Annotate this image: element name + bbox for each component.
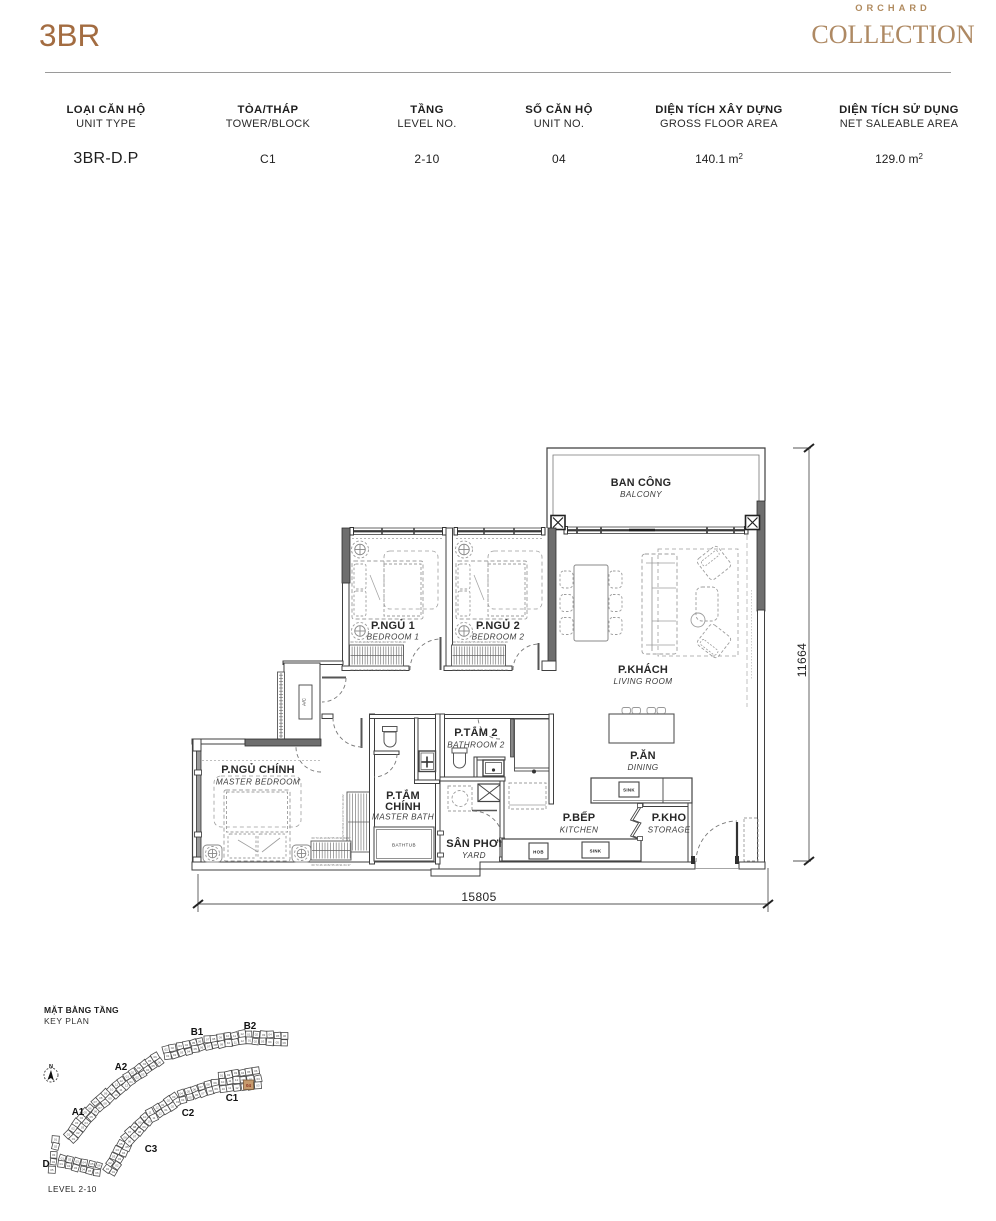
svg-text:01: 01 bbox=[67, 1133, 71, 1137]
svg-text:03: 03 bbox=[81, 1125, 85, 1129]
svg-text:TOWER/BLOCK: TOWER/BLOCK bbox=[226, 118, 311, 130]
svg-text:05: 05 bbox=[148, 1059, 152, 1063]
svg-text:3BR: 3BR bbox=[39, 17, 100, 53]
svg-text:03: 03 bbox=[234, 1071, 238, 1075]
svg-text:01: 01 bbox=[72, 1137, 76, 1141]
svg-text:STORAGE: STORAGE bbox=[648, 826, 691, 835]
svg-text:06: 06 bbox=[154, 1055, 158, 1059]
svg-text:02: 02 bbox=[115, 1164, 119, 1168]
svg-text:03: 03 bbox=[141, 1072, 145, 1076]
svg-text:BALCONY: BALCONY bbox=[620, 490, 662, 499]
svg-text:09: 09 bbox=[104, 1091, 108, 1095]
svg-text:05: 05 bbox=[119, 1142, 123, 1146]
svg-text:10: 10 bbox=[114, 1093, 118, 1097]
svg-text:03: 03 bbox=[257, 1077, 261, 1081]
svg-text:15805: 15805 bbox=[461, 890, 496, 904]
svg-text:BATHTUB: BATHTUB bbox=[392, 843, 416, 848]
svg-text:11: 11 bbox=[228, 1086, 231, 1090]
svg-text:P.KHO: P.KHO bbox=[652, 812, 687, 824]
svg-text:09: 09 bbox=[138, 1120, 142, 1124]
svg-text:07: 07 bbox=[98, 1106, 102, 1110]
svg-text:02: 02 bbox=[255, 1033, 259, 1037]
svg-text:05: 05 bbox=[90, 1115, 94, 1119]
svg-text:LOẠI CĂN HỘ: LOẠI CĂN HỘ bbox=[66, 103, 145, 116]
svg-text:12: 12 bbox=[235, 1078, 239, 1082]
svg-text:07: 07 bbox=[206, 1038, 210, 1042]
svg-text:12: 12 bbox=[240, 1032, 244, 1036]
svg-text:06: 06 bbox=[283, 1041, 287, 1045]
svg-text:10: 10 bbox=[221, 1080, 225, 1084]
svg-text:07: 07 bbox=[94, 1100, 98, 1104]
svg-text:KITCHEN: KITCHEN bbox=[560, 826, 599, 835]
svg-text:140.1 m2: 140.1 m2 bbox=[695, 152, 743, 166]
svg-text:A/C: A/C bbox=[302, 697, 308, 706]
svg-text:01: 01 bbox=[165, 1048, 169, 1052]
svg-text:D: D bbox=[42, 1159, 49, 1170]
svg-text:B2: B2 bbox=[244, 1021, 257, 1032]
svg-text:06: 06 bbox=[95, 1171, 99, 1175]
svg-text:04: 04 bbox=[268, 1040, 272, 1044]
svg-text:02: 02 bbox=[71, 1127, 75, 1131]
svg-text:03: 03 bbox=[176, 1100, 180, 1104]
svg-text:SINK: SINK bbox=[590, 849, 602, 854]
svg-text:04: 04 bbox=[269, 1033, 273, 1037]
svg-text:10: 10 bbox=[110, 1088, 114, 1092]
svg-text:C3: C3 bbox=[145, 1144, 158, 1155]
svg-text:06: 06 bbox=[193, 1087, 197, 1091]
svg-text:02: 02 bbox=[54, 1145, 58, 1149]
svg-text:01: 01 bbox=[248, 1039, 252, 1043]
svg-text:YARD: YARD bbox=[462, 851, 486, 860]
svg-text:37: 37 bbox=[347, 836, 351, 840]
svg-text:P.NGỦ 2: P.NGỦ 2 bbox=[476, 619, 520, 632]
svg-text:02: 02 bbox=[67, 1164, 71, 1168]
svg-text:02: 02 bbox=[173, 1053, 177, 1057]
svg-text:09: 09 bbox=[142, 1125, 146, 1129]
svg-text:06: 06 bbox=[128, 1140, 132, 1144]
svg-text:01: 01 bbox=[220, 1074, 224, 1078]
svg-text:08: 08 bbox=[138, 1130, 142, 1134]
svg-text:DINING: DINING bbox=[627, 763, 658, 772]
svg-text:12: 12 bbox=[155, 1106, 159, 1110]
svg-text:19: 19 bbox=[504, 668, 508, 672]
svg-text:06: 06 bbox=[254, 1069, 258, 1073]
svg-text:02: 02 bbox=[136, 1076, 140, 1080]
svg-text:04: 04 bbox=[180, 1091, 184, 1095]
svg-text:11: 11 bbox=[233, 1034, 236, 1038]
svg-text:01: 01 bbox=[129, 1080, 133, 1084]
svg-text:11: 11 bbox=[148, 1110, 151, 1114]
svg-text:05: 05 bbox=[125, 1145, 129, 1149]
svg-text:P.TẮM 2: P.TẮM 2 bbox=[454, 726, 497, 739]
svg-text:07: 07 bbox=[201, 1092, 205, 1096]
svg-text:05: 05 bbox=[276, 1040, 280, 1044]
svg-text:01: 01 bbox=[112, 1170, 116, 1174]
svg-text:02: 02 bbox=[171, 1105, 175, 1109]
svg-text:04: 04 bbox=[83, 1161, 87, 1165]
svg-text:SÂN PHƠI: SÂN PHƠI bbox=[446, 837, 502, 850]
svg-text:09: 09 bbox=[213, 1081, 217, 1085]
svg-text:03: 03 bbox=[137, 1066, 141, 1070]
svg-text:2-10: 2-10 bbox=[414, 152, 439, 166]
svg-text:DIỆN TÍCH SỬ DỤNG: DIỆN TÍCH SỬ DỤNG bbox=[839, 103, 959, 116]
svg-text:07: 07 bbox=[200, 1085, 204, 1089]
svg-text:P.KHÁCH: P.KHÁCH bbox=[618, 663, 668, 676]
svg-text:08: 08 bbox=[206, 1082, 210, 1086]
svg-text:05: 05 bbox=[187, 1089, 191, 1093]
svg-text:04: 04 bbox=[185, 1043, 189, 1047]
svg-text:P.BẾP: P.BẾP bbox=[563, 811, 596, 824]
svg-text:01: 01 bbox=[61, 1156, 65, 1160]
svg-text:BAN CÔNG: BAN CÔNG bbox=[611, 476, 671, 489]
svg-text:LEVEL 2-10: LEVEL 2-10 bbox=[48, 1185, 97, 1194]
svg-text:SINK: SINK bbox=[623, 788, 635, 793]
svg-text:HOB: HOB bbox=[533, 850, 544, 855]
svg-text:05: 05 bbox=[192, 1041, 196, 1045]
svg-text:05: 05 bbox=[88, 1169, 92, 1173]
svg-text:TẦNG: TẦNG bbox=[410, 103, 444, 116]
svg-text:P.ĂN: P.ĂN bbox=[630, 749, 656, 762]
svg-text:LEVEL NO.: LEVEL NO. bbox=[397, 118, 456, 130]
svg-text:11: 11 bbox=[119, 1088, 122, 1092]
svg-text:06: 06 bbox=[88, 1106, 92, 1110]
svg-text:04: 04 bbox=[82, 1168, 86, 1172]
svg-text:07: 07 bbox=[133, 1135, 137, 1139]
svg-text:12: 12 bbox=[241, 1039, 245, 1043]
svg-text:07: 07 bbox=[128, 1130, 132, 1134]
svg-text:A1: A1 bbox=[72, 1107, 85, 1118]
svg-text:01: 01 bbox=[166, 1054, 170, 1058]
svg-text:01: 01 bbox=[60, 1162, 64, 1166]
svg-text:12: 12 bbox=[125, 1084, 129, 1088]
svg-text:03: 03 bbox=[180, 1051, 184, 1055]
svg-text:10: 10 bbox=[226, 1034, 230, 1038]
svg-text:01: 01 bbox=[164, 1108, 168, 1112]
svg-text:04: 04 bbox=[246, 1083, 252, 1088]
svg-text:09: 09 bbox=[219, 1036, 223, 1040]
svg-text:UNIT NO.: UNIT NO. bbox=[534, 118, 584, 130]
svg-text:04: 04 bbox=[85, 1121, 89, 1125]
svg-text:C2: C2 bbox=[182, 1108, 195, 1119]
svg-text:01: 01 bbox=[54, 1138, 58, 1142]
svg-text:BEDROOM 2: BEDROOM 2 bbox=[472, 633, 525, 642]
svg-text:03: 03 bbox=[256, 1084, 260, 1088]
svg-text:08: 08 bbox=[214, 1043, 218, 1047]
svg-text:06: 06 bbox=[283, 1034, 287, 1038]
svg-text:06: 06 bbox=[94, 1110, 98, 1114]
svg-text:MASTER BEDROOM: MASTER BEDROOM bbox=[216, 778, 300, 787]
svg-text:03: 03 bbox=[261, 1039, 265, 1043]
svg-text:01: 01 bbox=[247, 1032, 251, 1036]
svg-text:ORCHARD: ORCHARD bbox=[855, 3, 931, 13]
svg-text:10: 10 bbox=[222, 1087, 226, 1091]
svg-text:04: 04 bbox=[146, 1068, 150, 1072]
svg-text:04: 04 bbox=[52, 1160, 56, 1164]
svg-text:01: 01 bbox=[161, 1103, 165, 1107]
svg-text:11: 11 bbox=[115, 1083, 118, 1087]
svg-text:02: 02 bbox=[108, 1161, 112, 1165]
svg-text:05: 05 bbox=[194, 1047, 198, 1051]
svg-text:02: 02 bbox=[171, 1046, 175, 1050]
svg-text:B1: B1 bbox=[191, 1027, 204, 1038]
svg-text:COLLECTION: COLLECTION bbox=[811, 20, 974, 49]
svg-text:04: 04 bbox=[552, 152, 566, 166]
svg-text:03: 03 bbox=[178, 1044, 182, 1048]
svg-text:04: 04 bbox=[181, 1098, 185, 1102]
svg-text:06: 06 bbox=[198, 1040, 202, 1044]
svg-text:GROSS FLOOR AREA: GROSS FLOOR AREA bbox=[660, 118, 778, 130]
svg-text:05: 05 bbox=[90, 1162, 94, 1166]
svg-text:06: 06 bbox=[158, 1060, 162, 1064]
svg-text:LIVING ROOM: LIVING ROOM bbox=[614, 677, 673, 686]
svg-text:08: 08 bbox=[99, 1096, 103, 1100]
svg-text:19: 19 bbox=[402, 668, 406, 672]
svg-text:03: 03 bbox=[74, 1166, 78, 1170]
svg-text:02: 02 bbox=[68, 1158, 72, 1162]
svg-text:12: 12 bbox=[158, 1112, 162, 1116]
svg-text:A2: A2 bbox=[115, 1062, 128, 1073]
svg-text:37: 37 bbox=[347, 863, 351, 867]
svg-text:DIỆN TÍCH XÂY DỰNG: DIỆN TÍCH XÂY DỰNG bbox=[655, 103, 782, 116]
svg-text:01: 01 bbox=[106, 1167, 110, 1171]
svg-text:05: 05 bbox=[152, 1064, 156, 1068]
svg-text:12: 12 bbox=[235, 1086, 239, 1090]
svg-text:06: 06 bbox=[97, 1164, 101, 1168]
svg-text:08: 08 bbox=[133, 1125, 137, 1129]
svg-text:SỐ CĂN HỘ: SỐ CĂN HỘ bbox=[525, 102, 593, 116]
svg-text:04: 04 bbox=[241, 1071, 245, 1075]
svg-text:02: 02 bbox=[167, 1099, 171, 1103]
svg-text:UNIT TYPE: UNIT TYPE bbox=[76, 118, 136, 130]
svg-text:03: 03 bbox=[172, 1095, 176, 1099]
svg-text:CHÍNH: CHÍNH bbox=[385, 800, 421, 813]
svg-text:03: 03 bbox=[75, 1121, 79, 1125]
svg-text:03: 03 bbox=[262, 1033, 266, 1037]
svg-text:03: 03 bbox=[118, 1157, 122, 1161]
svg-text:09: 09 bbox=[220, 1043, 224, 1047]
svg-text:06: 06 bbox=[195, 1093, 199, 1097]
svg-text:TÒA/THÁP: TÒA/THÁP bbox=[238, 103, 299, 116]
svg-text:C1: C1 bbox=[226, 1093, 239, 1104]
svg-text:C1: C1 bbox=[260, 152, 276, 166]
svg-text:02: 02 bbox=[227, 1073, 231, 1077]
svg-text:04: 04 bbox=[116, 1148, 120, 1152]
svg-text:07: 07 bbox=[207, 1045, 211, 1049]
svg-text:P.NGỦ CHÍNH: P.NGỦ CHÍNH bbox=[221, 763, 295, 776]
svg-text:11664: 11664 bbox=[795, 643, 809, 677]
svg-text:04: 04 bbox=[122, 1151, 126, 1155]
svg-text:11: 11 bbox=[234, 1040, 237, 1044]
svg-text:BATHROOM 2: BATHROOM 2 bbox=[447, 741, 505, 750]
svg-text:129.0 m2: 129.0 m2 bbox=[875, 152, 923, 166]
svg-text:09: 09 bbox=[108, 1097, 112, 1101]
svg-text:03: 03 bbox=[112, 1155, 116, 1159]
svg-text:KEY PLAN: KEY PLAN bbox=[44, 1016, 89, 1026]
svg-text:08: 08 bbox=[209, 1089, 213, 1093]
svg-text:MẶT BẰNG TẦNG: MẶT BẰNG TẦNG bbox=[44, 1005, 119, 1015]
svg-text:02: 02 bbox=[131, 1070, 135, 1074]
svg-text:04: 04 bbox=[143, 1062, 147, 1066]
svg-text:10: 10 bbox=[143, 1115, 147, 1119]
svg-text:06: 06 bbox=[124, 1135, 128, 1139]
svg-text:04: 04 bbox=[187, 1050, 191, 1054]
svg-text:10: 10 bbox=[227, 1041, 231, 1045]
svg-text:NET SALEABLE AREA: NET SALEABLE AREA bbox=[840, 118, 959, 130]
svg-text:12: 12 bbox=[120, 1079, 124, 1083]
svg-text:11: 11 bbox=[228, 1079, 231, 1083]
svg-text:10: 10 bbox=[147, 1120, 151, 1124]
svg-text:01: 01 bbox=[126, 1074, 130, 1078]
svg-text:03: 03 bbox=[52, 1153, 56, 1157]
svg-text:05: 05 bbox=[188, 1095, 192, 1099]
svg-text:MASTER BATH: MASTER BATH bbox=[372, 813, 434, 822]
svg-text:82: 82 bbox=[341, 794, 345, 798]
svg-text:08: 08 bbox=[212, 1037, 216, 1041]
svg-text:05: 05 bbox=[247, 1070, 251, 1074]
svg-text:05: 05 bbox=[50, 1168, 54, 1172]
svg-text:3BR-D.P: 3BR-D.P bbox=[73, 150, 138, 167]
svg-text:08: 08 bbox=[104, 1101, 108, 1105]
svg-text:02: 02 bbox=[76, 1131, 80, 1135]
svg-text:02: 02 bbox=[254, 1040, 258, 1044]
svg-text:N: N bbox=[49, 1064, 53, 1070]
svg-text:03: 03 bbox=[76, 1159, 80, 1163]
svg-text:11: 11 bbox=[152, 1116, 155, 1120]
svg-text:05: 05 bbox=[276, 1034, 280, 1038]
svg-text:BEDROOM 1: BEDROOM 1 bbox=[367, 633, 420, 642]
svg-text:09: 09 bbox=[215, 1087, 219, 1091]
svg-text:P.NGỦ 1: P.NGỦ 1 bbox=[371, 619, 415, 632]
svg-text:06: 06 bbox=[200, 1046, 204, 1050]
